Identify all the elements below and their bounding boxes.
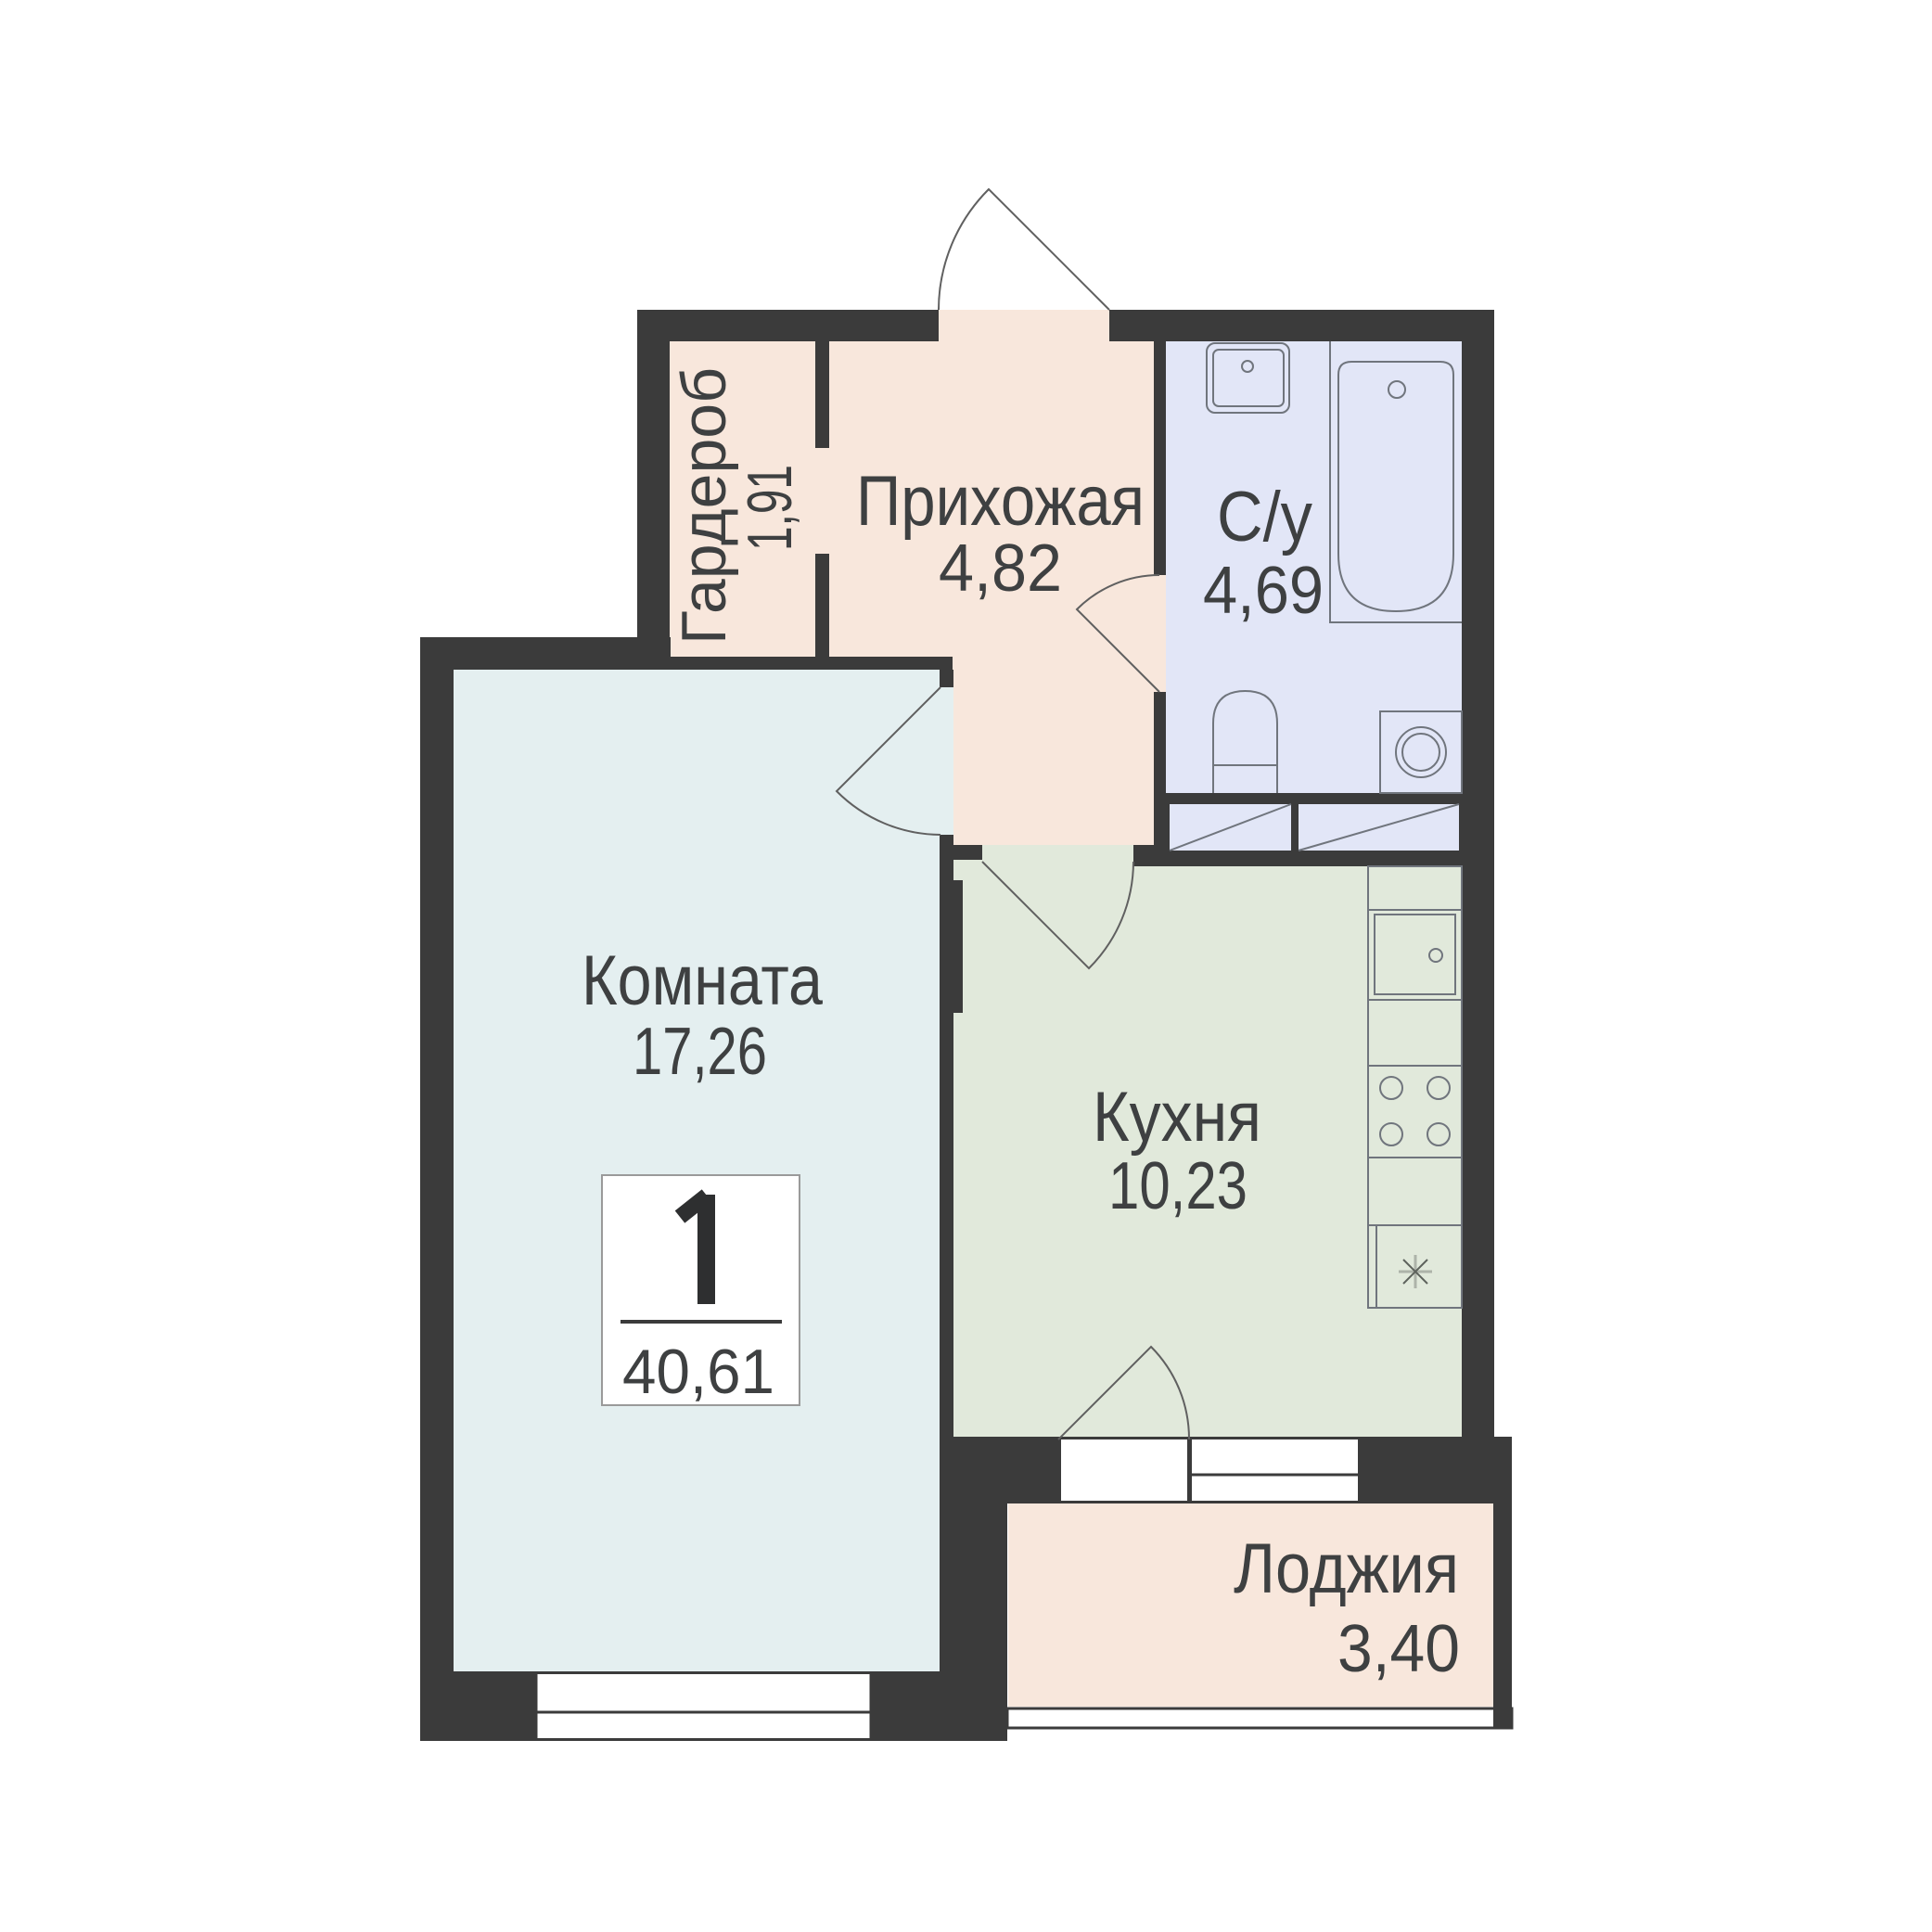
- svg-text:4,82: 4,82: [939, 531, 1062, 606]
- svg-text:Кухня: Кухня: [1093, 1078, 1261, 1157]
- svg-text:С/у: С/у: [1217, 478, 1312, 557]
- svg-text:1,91: 1,91: [735, 465, 805, 551]
- svg-text:3,40: 3,40: [1337, 1612, 1460, 1686]
- svg-text:4,69: 4,69: [1203, 554, 1324, 628]
- svg-text:Лоджия: Лоджия: [1234, 1529, 1459, 1608]
- svg-text:Гардероб: Гардероб: [669, 367, 739, 645]
- svg-text:Прихожая: Прихожая: [856, 462, 1145, 541]
- svg-text:40,61: 40,61: [622, 1337, 774, 1407]
- svg-text:17,26: 17,26: [633, 1015, 767, 1089]
- svg-text:Комната: Комната: [582, 941, 824, 1020]
- svg-text:10,23: 10,23: [1108, 1149, 1247, 1223]
